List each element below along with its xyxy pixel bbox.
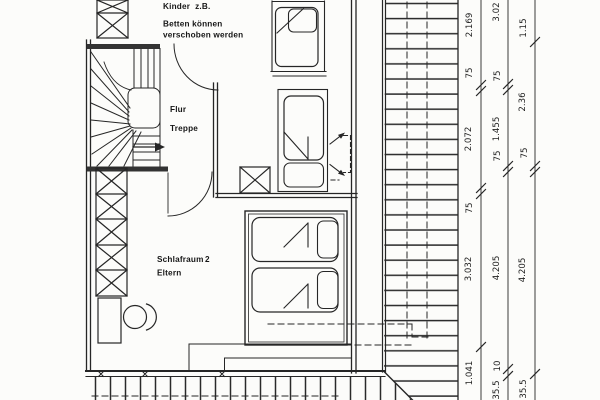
dim-inner-0: 2.169 bbox=[465, 13, 475, 38]
dim-middle-6: 35.5 bbox=[492, 380, 502, 399]
walls bbox=[86, 0, 385, 377]
label-kinder: Kinder z.B. bbox=[163, 2, 210, 11]
dimension-labels: 2.169 75 2.072 75 3.032 1.041 3.02 75 1.… bbox=[464, 2, 530, 399]
label-verschoben-werden: verschoben werden bbox=[163, 31, 243, 40]
wardrobe bbox=[98, 298, 121, 343]
roof-batten-area-right bbox=[383, 0, 459, 400]
label-flur: Flur bbox=[170, 105, 187, 114]
blanket-fold bbox=[277, 9, 304, 34]
dim-middle-5: 10 bbox=[493, 361, 503, 372]
pillow bbox=[318, 221, 339, 258]
dim-middle-2: 1.455 bbox=[492, 117, 502, 142]
blanket-fold bbox=[284, 132, 308, 159]
floor-plan-sheet: 2.169 75 2.072 75 3.032 1.041 3.02 75 1.… bbox=[0, 0, 600, 400]
label-treppe: Treppe bbox=[170, 124, 198, 133]
bed-double bbox=[245, 211, 347, 345]
dim-middle-0: 3.02 bbox=[492, 2, 502, 21]
dim-inner-2: 2.072 bbox=[464, 127, 474, 152]
stair-top-wall bbox=[87, 44, 160, 49]
floor-plan-drawing: 2.169 75 2.072 75 3.032 1.041 3.02 75 1.… bbox=[0, 0, 600, 400]
stair-core bbox=[128, 88, 160, 128]
dim-outer-4: 35.5 bbox=[519, 379, 529, 398]
dim-inner-5: 1.041 bbox=[465, 361, 475, 386]
pillow bbox=[284, 163, 324, 187]
blanket-fold bbox=[284, 284, 308, 308]
door-arc-kinder bbox=[174, 44, 218, 90]
pillow bbox=[318, 272, 339, 309]
dim-middle-3: 75 bbox=[493, 151, 503, 162]
door-arc-schlafraum bbox=[168, 172, 212, 216]
stool-circle bbox=[124, 304, 157, 330]
left-outer-wall bbox=[87, 40, 91, 371]
dim-inner-4: 3.032 bbox=[464, 257, 474, 282]
dimension-chains: 2.169 75 2.072 75 3.032 1.041 3.02 75 1.… bbox=[464, 0, 540, 400]
dim-middle-1: 75 bbox=[493, 71, 503, 82]
dim-middle-4: 4.205 bbox=[492, 256, 502, 281]
dim-inner-3: 75 bbox=[465, 203, 475, 214]
wall-hatch-column bbox=[96, 168, 127, 296]
blanket-fold bbox=[284, 223, 308, 247]
dim-outer-2: 75 bbox=[520, 148, 530, 159]
bed-move-arrows bbox=[330, 133, 351, 181]
roof-batten-area-bottom bbox=[90, 377, 412, 400]
kinder-bottom-wall bbox=[216, 194, 357, 198]
label-schlafraum-number: 2 bbox=[205, 255, 210, 264]
room-labels: Kinder z.B. Betten können verschoben wer… bbox=[157, 2, 243, 278]
dim-outer-3: 4.205 bbox=[518, 258, 528, 283]
staircase bbox=[91, 49, 165, 168]
wall-x-marks bbox=[99, 372, 225, 377]
stair-upper-flight-treads bbox=[134, 49, 154, 88]
bed-single-1 bbox=[271, 1, 326, 76]
dim-outer-0: 1.15 bbox=[519, 18, 529, 37]
label-betten-koennen: Betten können bbox=[163, 20, 222, 29]
label-schlafraum: Schlafraum bbox=[157, 255, 204, 264]
bed-single-2 bbox=[278, 90, 328, 192]
hall-room-divider-wall bbox=[214, 83, 218, 197]
label-eltern: Eltern bbox=[157, 269, 181, 278]
dashed-hidden-lines bbox=[92, 2, 431, 396]
right-outer-wall bbox=[352, 0, 357, 373]
chimney-hatch-box bbox=[240, 167, 270, 193]
masonry-pier-top bbox=[97, 0, 128, 38]
bottom-wall-ledge bbox=[189, 344, 352, 371]
dim-inner-1: 75 bbox=[465, 68, 475, 79]
dim-outer-1: 2.36 bbox=[518, 92, 528, 111]
